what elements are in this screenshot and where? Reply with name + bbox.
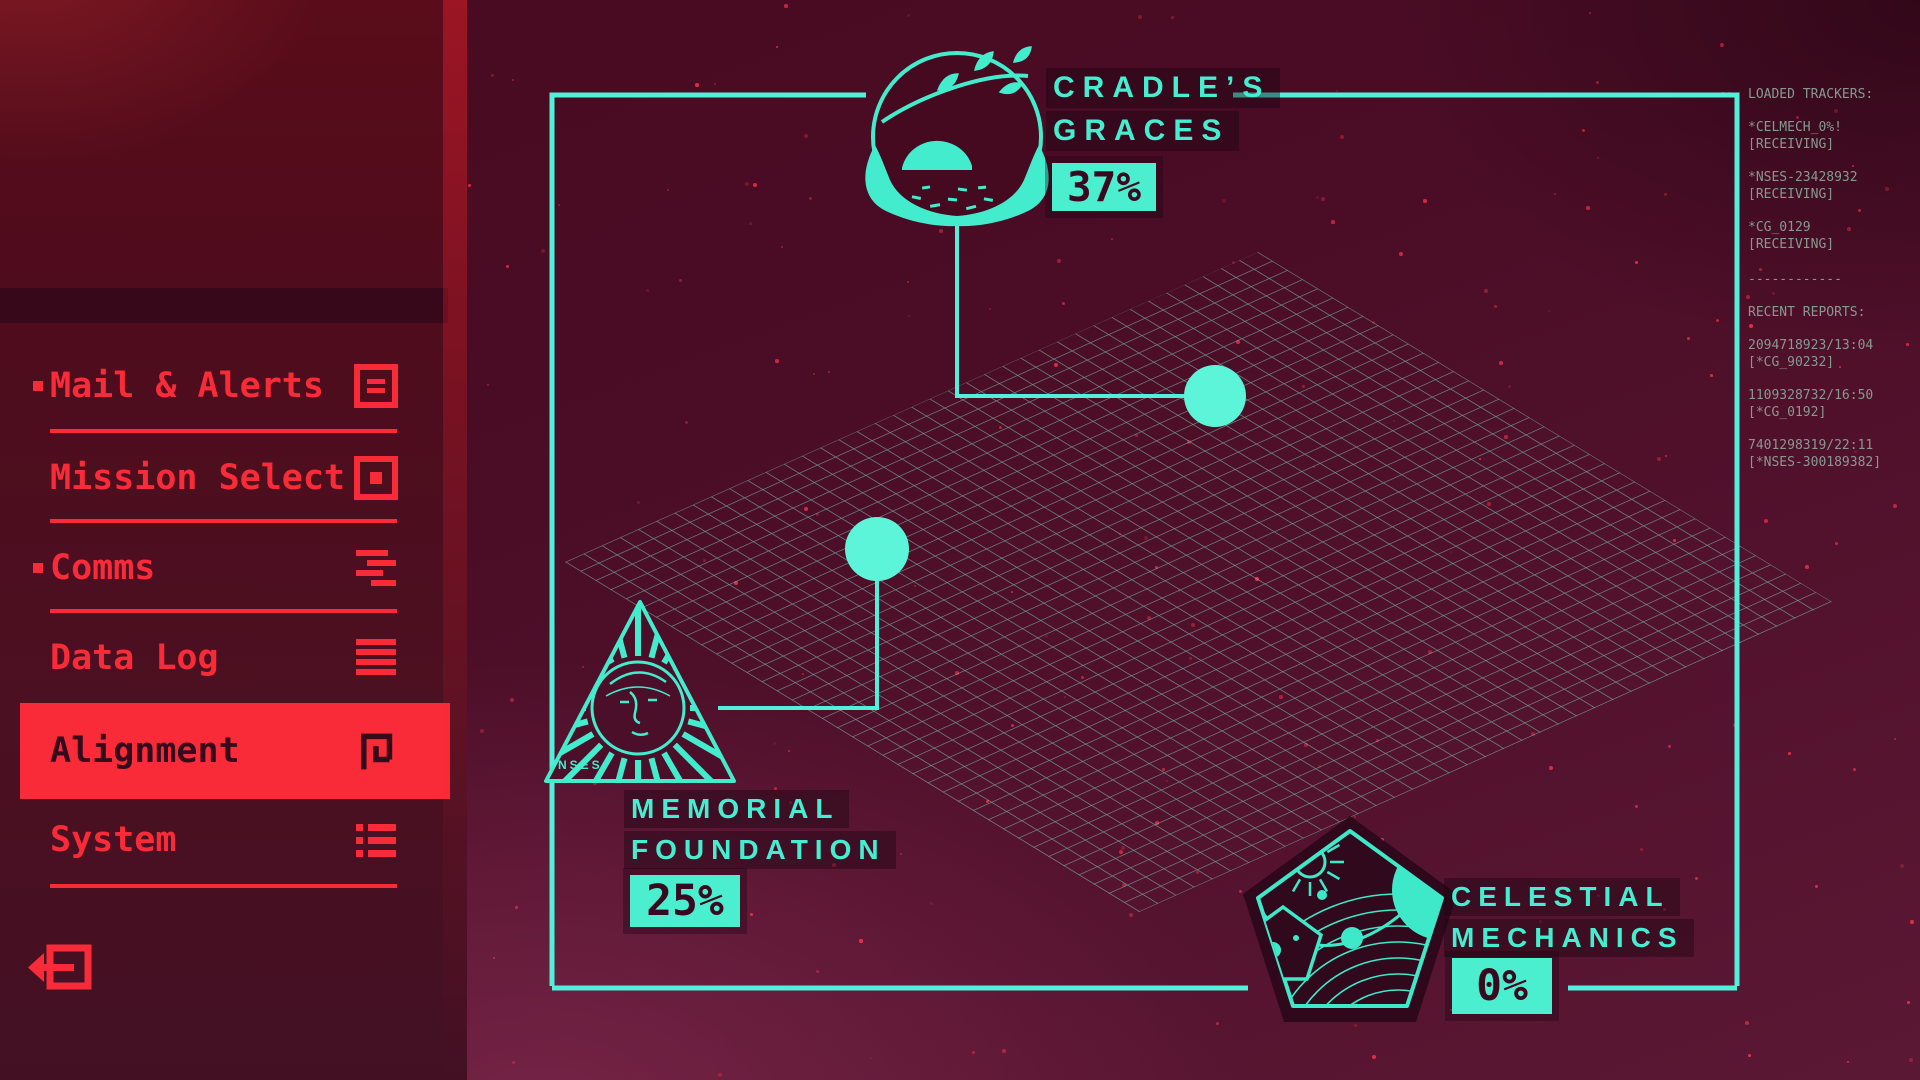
report-source: [*CG_90232] [1748,354,1920,371]
tracker-panel: LOADED TRACKERS: *CELMECH_0%! [RECEIVING… [1748,86,1920,487]
node-cradles-graces[interactable] [1184,365,1246,427]
sidebar-item-mail-alerts[interactable]: Mail & Alerts [0,364,467,420]
sidebar-header-strip [0,288,448,323]
tracker-item: *NSES-23428932 [RECEIVING] [1748,169,1920,203]
comms-icon [354,546,398,590]
report-item: 1109328732/16:50 [*CG_0192] [1748,387,1920,421]
exit-button[interactable] [24,940,94,992]
exit-icon [24,940,94,992]
sidebar-item-mission-select[interactable]: Mission Select [0,456,467,512]
percent-badge-celestial-mechanics: 0% [1452,958,1552,1014]
menu-divider [50,519,397,523]
sidebar-item-label: Data Log [50,636,219,680]
faction-label-celestial-mechanics: CELESTIAL MECHANICS [1444,878,1694,960]
recent-reports-title: RECENT REPORTS: [1748,304,1920,321]
faction-name-line: CRADLE’S [1046,68,1280,108]
sidebar: Mail & Alerts Mission Select Comms [0,0,467,1080]
menu-divider [50,429,397,433]
panel-divider: ------------ [1748,271,1920,288]
cradles-graces-emblem [865,47,1048,226]
emblem-nses-text: NSES [558,758,603,772]
sidebar-item-alignment-active[interactable]: Alignment [20,703,450,799]
sidebar-item-data-log[interactable]: Data Log [0,636,467,692]
alignment-icon [354,729,398,773]
mail-alerts-icon [354,364,398,408]
node-memorial-foundation[interactable] [845,517,909,581]
percent-badge-memorial-foundation: 25% [630,875,740,927]
data-log-icon [354,636,398,680]
report-item: 2094718923/13:04 [*CG_90232] [1748,337,1920,371]
sidebar-item-label: Mission Select [50,456,345,500]
tracker-status: [RECEIVING] [1748,236,1920,253]
tracker-item: *CELMECH_0%! [RECEIVING] [1748,119,1920,153]
faction-name-line: CELESTIAL [1444,878,1680,916]
alignment-screen: NSES [0,0,1920,1080]
sidebar-item-label: Alignment [50,729,240,773]
tracker-item: *CG_0129 [RECEIVING] [1748,219,1920,253]
faction-name-line: GRACES [1046,111,1239,151]
report-source: [*CG_0192] [1748,404,1920,421]
moon [1341,927,1363,949]
tracker-id: *CELMECH_0%! [1748,119,1920,136]
faction-label-cradles-graces: CRADLE’S GRACES [1046,68,1280,154]
report-item: 7401298319/22:11 [*NSES-300189382] [1748,437,1920,471]
sidebar-item-label: System [50,818,176,862]
report-id: 7401298319/22:11 [1748,437,1920,454]
system-icon [354,818,398,862]
mission-select-icon [354,456,398,500]
unread-bullet [33,381,43,391]
report-source: [*NSES-300189382] [1748,454,1920,471]
report-id: 2094718923/13:04 [1748,337,1920,354]
percent-badge-cradles-graces: 37% [1052,163,1156,211]
menu-divider [50,884,397,888]
tracker-id: *CG_0129 [1748,219,1920,236]
tracker-status: [RECEIVING] [1748,136,1920,153]
tracker-id: *NSES-23428932 [1748,169,1920,186]
unread-bullet [33,563,43,573]
sidebar-item-label: Mail & Alerts [50,364,324,408]
menu-divider [50,609,397,613]
loaded-trackers-title: LOADED TRACKERS: [1748,86,1920,103]
report-id: 1109328732/16:50 [1748,387,1920,404]
sidebar-item-comms[interactable]: Comms [0,546,467,602]
sidebar-item-label: Comms [50,546,155,590]
faction-name-line: MECHANICS [1444,919,1694,957]
faction-label-memorial-foundation: MEMORIAL FOUNDATION [624,790,896,872]
tracker-status: [RECEIVING] [1748,186,1920,203]
faction-name-line: FOUNDATION [624,831,896,869]
faction-name-line: MEMORIAL [624,790,849,828]
classical-face [592,662,684,754]
sidebar-item-system[interactable]: System [0,818,467,874]
